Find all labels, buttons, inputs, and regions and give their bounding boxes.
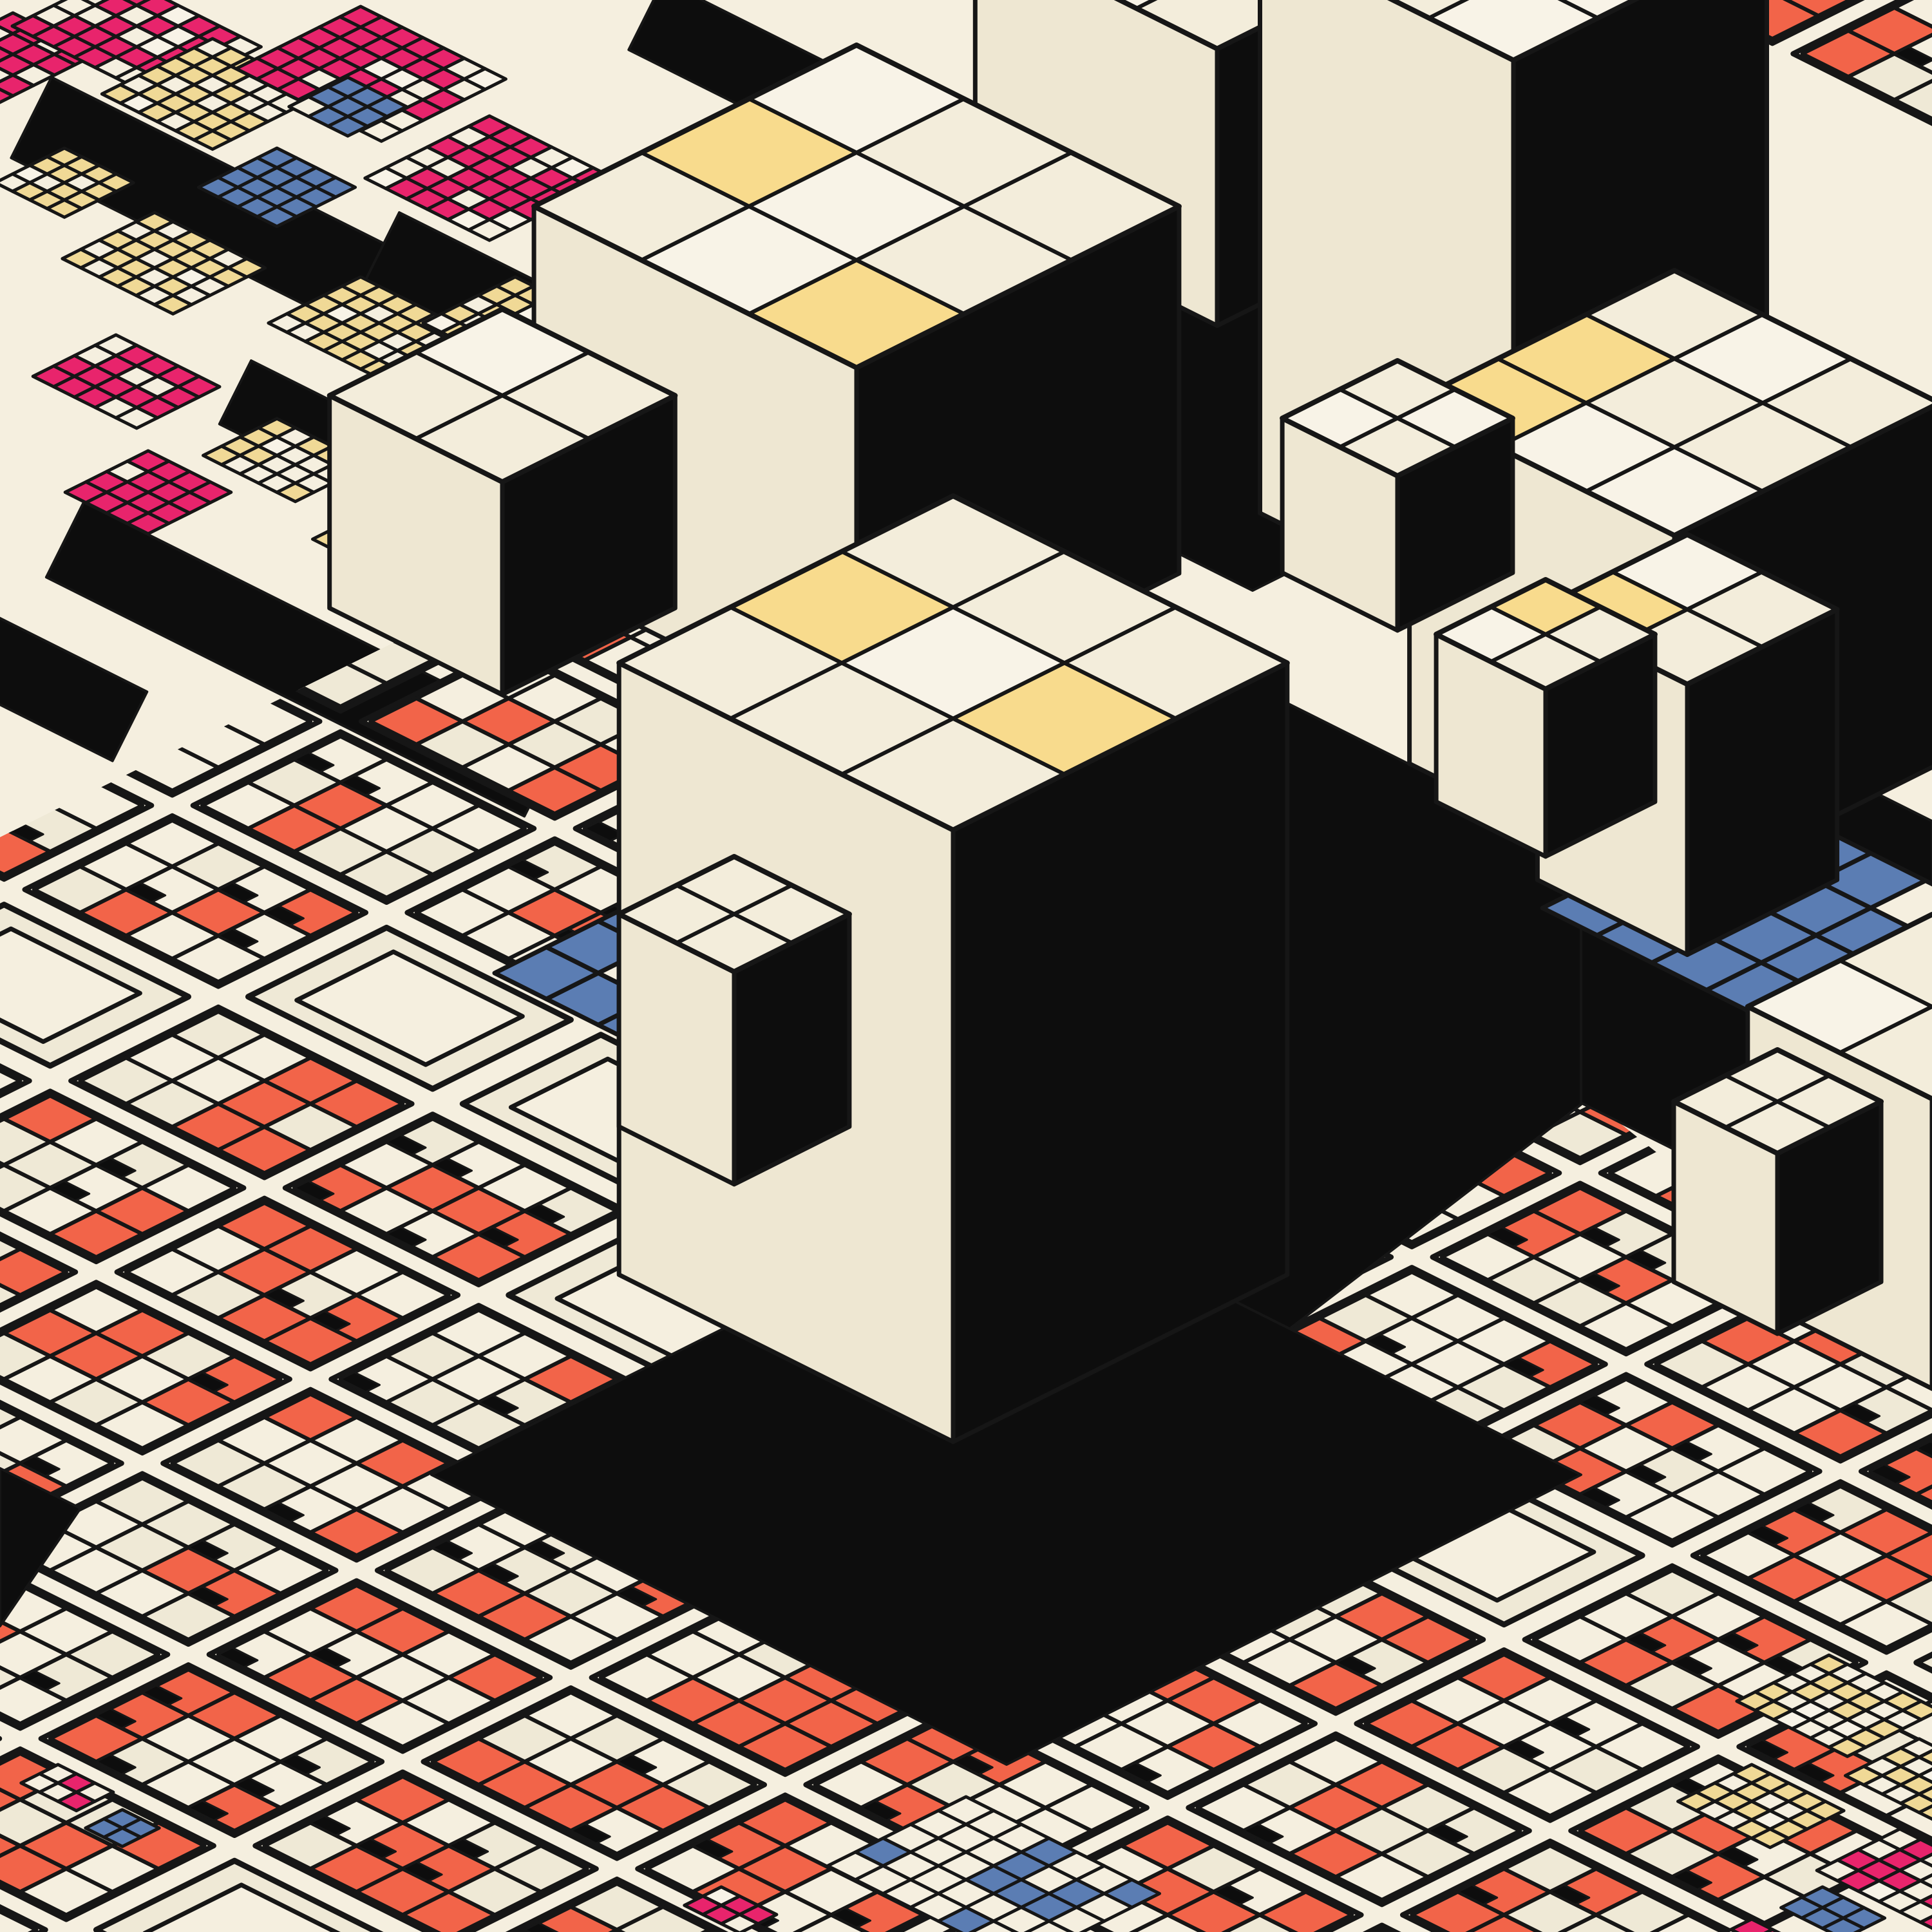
generative-isometric-artwork (0, 0, 1932, 1932)
tower (1674, 1050, 1881, 1334)
tower (619, 857, 849, 1184)
artwork-canvas (0, 0, 1932, 1932)
tower (1436, 580, 1655, 857)
tower (1282, 361, 1513, 630)
scene-root (0, 0, 1932, 1932)
